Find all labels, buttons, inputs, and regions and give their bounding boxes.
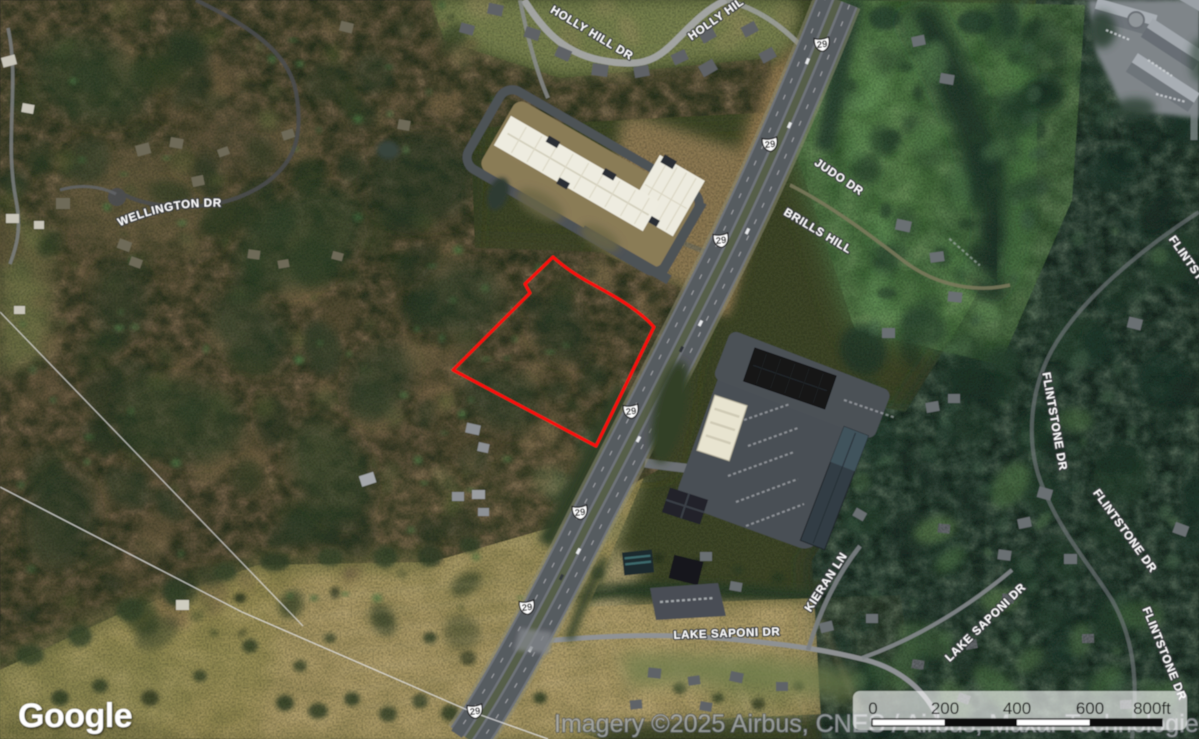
svg-text:200: 200 [931,699,959,718]
svg-text:29: 29 [715,235,727,247]
svg-text:400: 400 [1003,699,1031,718]
svg-text:800ft: 800ft [1133,699,1171,718]
svg-text:29: 29 [764,139,776,151]
svg-text:29: 29 [521,602,533,614]
svg-text:29: 29 [625,406,637,418]
svg-text:600: 600 [1076,699,1104,718]
svg-text:29: 29 [574,507,586,519]
svg-text:29: 29 [816,39,828,51]
svg-text:0: 0 [868,699,877,718]
svg-text:Google: Google [18,697,132,735]
svg-text:29: 29 [469,706,481,718]
